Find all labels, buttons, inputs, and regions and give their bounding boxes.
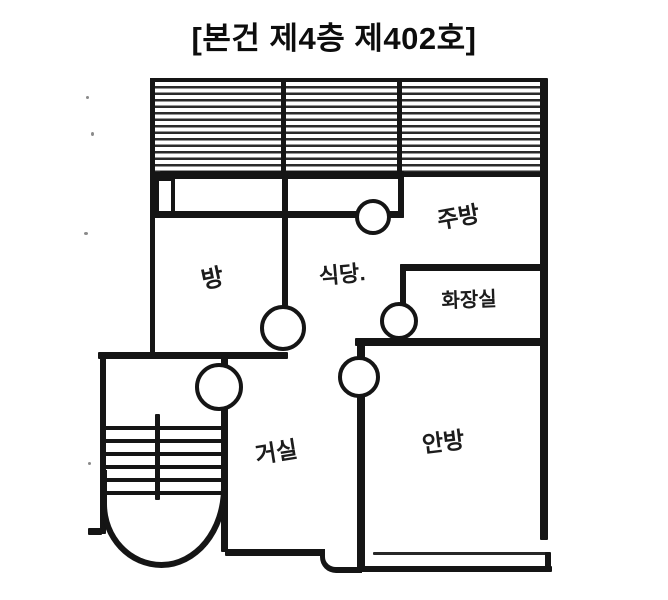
outer-wall-right [540, 78, 548, 540]
scan-speck [84, 232, 88, 235]
wall-stair-left-stub [88, 528, 102, 535]
room-label-bathroom: 화장실 [441, 283, 497, 314]
staircase-curved-wall [101, 470, 227, 568]
wall-living-bottom [225, 549, 325, 556]
scan-speck [91, 132, 94, 136]
balcony-divider-right [397, 80, 402, 177]
door-circle-master-bedroom [338, 356, 380, 398]
wall-bottom-right-tick [545, 552, 551, 572]
scan-speck [88, 462, 91, 465]
wall-living-top [98, 352, 288, 359]
page-title: [본건 제4층 제402호] [0, 13, 668, 58]
door-circle-bathroom [380, 302, 418, 340]
door-circle-kitchen [355, 199, 391, 235]
wall-master-bottom-inner [373, 552, 547, 555]
scan-speck [86, 96, 89, 99]
balcony-divider-left [281, 80, 286, 177]
room-label-master-bedroom: 안방 [420, 421, 466, 460]
outer-wall-left [150, 78, 155, 359]
room-label-small-room: 방 [198, 257, 227, 296]
room-label-living-room: 거실 [252, 430, 299, 470]
balcony-hatch [150, 78, 547, 177]
entry-notch [320, 549, 362, 573]
wall-bathroom-top [400, 264, 547, 271]
wall-kitchen-left [398, 177, 404, 218]
wall-bathroom-left [400, 264, 406, 305]
door-circle-living-entry [195, 363, 243, 411]
wall-bathroom-bottom [355, 338, 547, 346]
wall-master-bottom-outer [362, 566, 552, 572]
wall-room-top [150, 211, 357, 218]
wall-room-right [282, 177, 288, 306]
room-label-kitchen: 주방 [434, 195, 482, 236]
room-label-dining: 식당. [317, 255, 366, 291]
scanned-floorplan-page: [본건 제4층 제402호] [0, 0, 668, 600]
door-circle-small-room [260, 305, 306, 351]
